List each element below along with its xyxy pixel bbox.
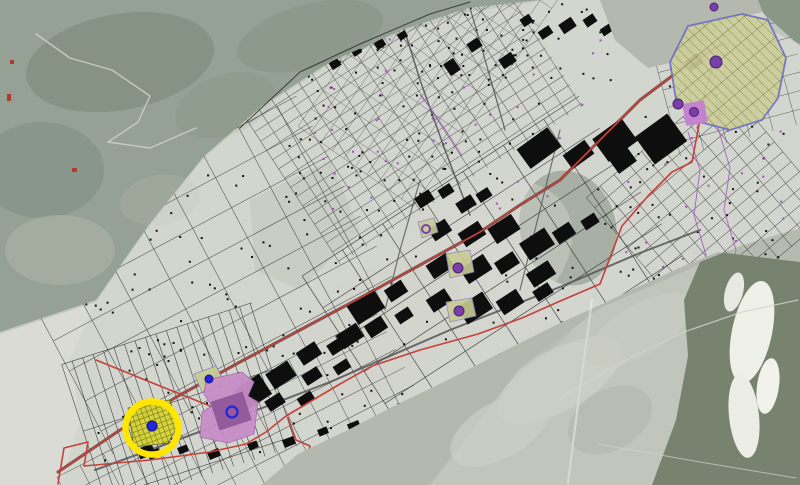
marker-purple-dot	[710, 56, 722, 68]
marker-purple-dot	[454, 306, 464, 316]
marker-blue-dot	[205, 375, 213, 383]
marker-blue-dot	[147, 421, 157, 431]
map-layers	[0, 0, 800, 485]
marker-purple-dot	[690, 108, 699, 117]
aerial-cadastral-map	[0, 0, 800, 485]
marker-purple-dot	[453, 263, 463, 273]
map-viewport[interactable]	[0, 0, 800, 485]
hill-clearing-1	[5, 215, 115, 285]
marker-purple-dot	[710, 3, 718, 11]
marker-purple-dot	[673, 99, 683, 109]
